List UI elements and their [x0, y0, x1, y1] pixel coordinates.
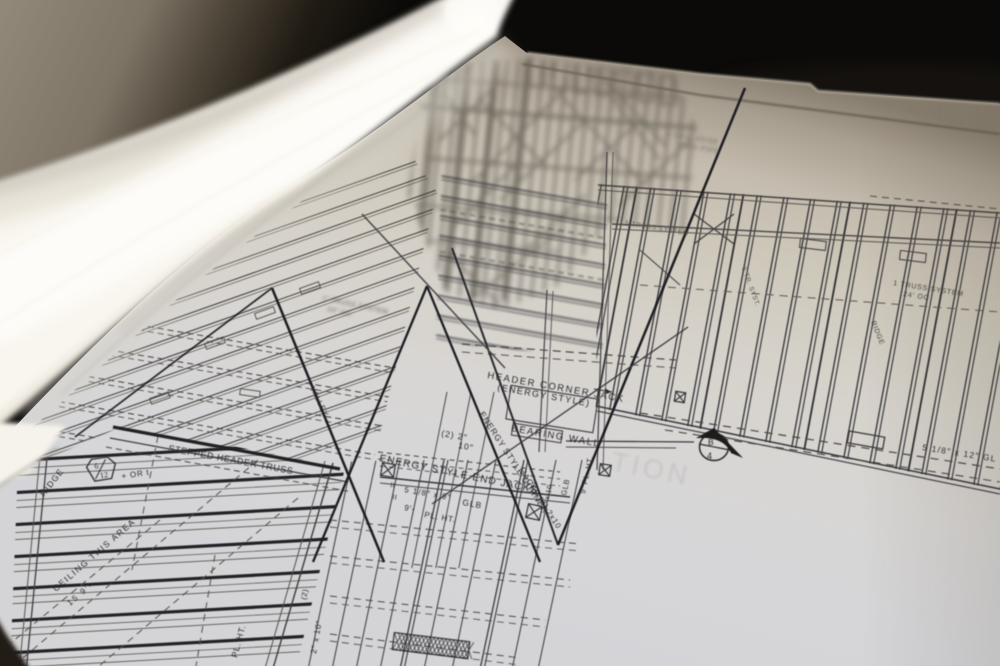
svg-text:12: 12 — [99, 470, 108, 480]
svg-text:B: B — [708, 437, 714, 447]
svg-text:4: 4 — [707, 451, 712, 461]
svg-text:(2): (2) — [299, 588, 310, 600]
svg-text:9′-: 9′- — [404, 503, 416, 514]
